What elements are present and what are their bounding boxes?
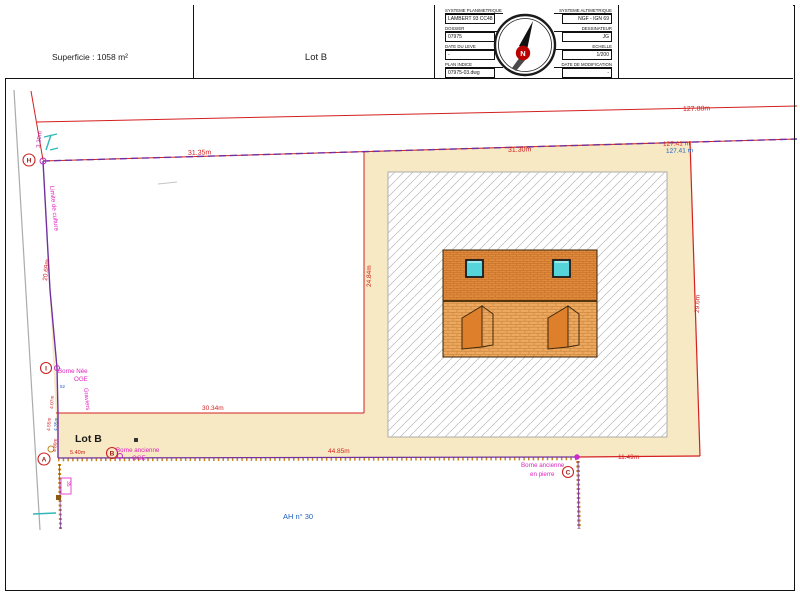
dim-30-34: 30.34m (202, 405, 224, 412)
lot-title-label: Lot B (193, 52, 439, 63)
dim-4-55: 4.55m (46, 417, 53, 431)
road-label: AH n° 30 (283, 512, 313, 521)
compass-north-letter: N (520, 49, 525, 58)
sys-alt-value: NGF - IGN 69 (562, 14, 612, 24)
header-divider (193, 5, 194, 78)
header-divider (618, 5, 619, 78)
dim-127-41-blue: 127.41 m (666, 147, 693, 155)
dim-4-07: 4.07m (49, 395, 56, 409)
dim-4-80: 4.80m (52, 438, 59, 452)
plan-indice-value: 07975-03.dwg (445, 68, 495, 78)
title-bar: Superficie : 1058 m² Lot B SYSTEME PLANI… (5, 5, 793, 79)
date-leve-value: - (445, 50, 495, 60)
left-white-area (43, 151, 364, 413)
marker-i: I (45, 366, 47, 373)
lot-b-label: Lot B (75, 433, 102, 445)
note-borne-nee-1: Borne Née (58, 368, 88, 375)
dim-11-49: 11.49m (618, 454, 639, 461)
dossier-value: 07975 (445, 32, 495, 42)
skylight-icon (553, 260, 570, 277)
dim-5-40: 5.40m (70, 450, 86, 456)
dim-127-88: 127.88m (683, 105, 711, 113)
dim-24-84: 24.84m (366, 265, 373, 287)
sys-plan-value: LAMBERT 93 CC48 (445, 14, 495, 24)
superficie-label: Superficie : 1058 m² (5, 52, 175, 62)
teal-network-line (33, 513, 56, 514)
marker-b: B (110, 451, 115, 458)
note-borne-pierre-2: en pierre (530, 471, 555, 478)
dim-31-35: 31.35m (188, 149, 212, 157)
dim-31-30: 31.30m (508, 146, 532, 154)
note-borne-ancienne-2: OGE (132, 455, 146, 462)
dim-3-20: 3.20m (36, 131, 44, 148)
vegetation-symbol-icon (44, 134, 58, 150)
note-pt52: 52 (60, 384, 66, 389)
dim-29-6: 29.6m (694, 295, 702, 313)
dim-4-35: 4.35m (53, 417, 60, 431)
marker-h: H (27, 158, 32, 165)
skylight-icon (466, 260, 483, 277)
note-borne-pierre-1: Borne ancienne (521, 462, 565, 469)
marker-a: A (42, 457, 47, 464)
gate-mark (56, 495, 61, 500)
house-roof (443, 250, 597, 357)
note-borne-nee-2: OGE (74, 376, 88, 383)
marker-c: C (566, 470, 571, 477)
road-edge-line (14, 90, 40, 530)
north-compass-icon: N (493, 13, 557, 77)
note-borne-ancienne-1: Borne ancienne (116, 447, 160, 454)
site-plan: H I A B C 127.88m 127.41 m 127.41 m 31.3… (0, 0, 800, 600)
small-black-square (134, 438, 138, 442)
note-parcel-box: 35 (65, 481, 71, 487)
dessinateur-value: JG (562, 32, 612, 42)
dim-44-85: 44.85m (328, 448, 350, 455)
echelle-value: 1/200 (562, 50, 612, 60)
date-modif-value: - (562, 68, 612, 78)
